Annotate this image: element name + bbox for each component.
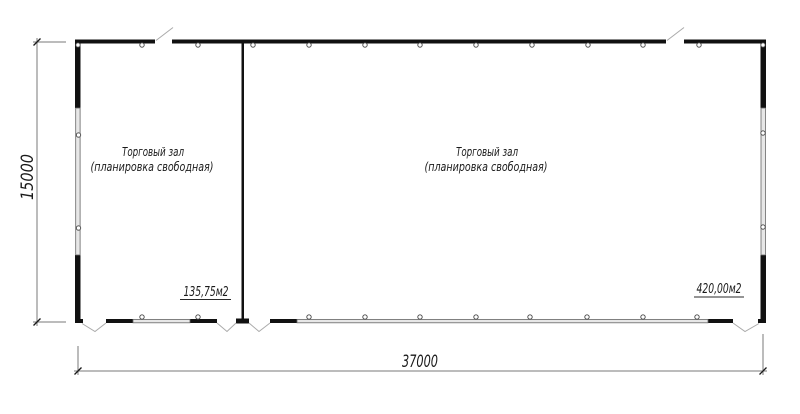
window-marker	[474, 43, 478, 47]
left-room-subtitle: (планировка свободная)	[91, 160, 214, 174]
window-marker	[196, 43, 200, 47]
right-room-subtitle: (планировка свободная)	[425, 160, 548, 174]
window-marker	[140, 43, 144, 47]
window-band-bottom-long	[297, 319, 708, 322]
window-markers	[76, 43, 765, 319]
window-marker	[641, 315, 645, 319]
window-marker	[363, 315, 367, 319]
wall-bottom-partition-foot	[236, 319, 249, 324]
wall-bottom-corner-right	[758, 319, 766, 323]
window-marker	[251, 43, 255, 47]
window-marker	[140, 315, 144, 319]
window-marker	[528, 315, 532, 319]
window-marker	[641, 43, 645, 47]
left-room-area-label: 135,75м2	[184, 284, 229, 300]
window-marker	[585, 315, 589, 319]
wall-left-lower	[75, 255, 81, 323]
window-marker	[761, 43, 765, 47]
right-room-area-label: 420,00м2	[697, 281, 742, 297]
window-band-bottom-small	[133, 319, 190, 322]
window-marker	[76, 43, 80, 47]
window-marker	[697, 43, 701, 47]
window-marker	[695, 315, 699, 319]
window-marker	[761, 131, 765, 135]
entrance-bottom-right	[733, 323, 759, 332]
window-marker	[307, 315, 311, 319]
window-marker	[474, 315, 478, 319]
window-marker	[530, 43, 534, 47]
wall-top-right	[684, 40, 766, 44]
wall-bottom-seg2	[190, 319, 217, 323]
window-band-left	[76, 108, 80, 255]
entrance-bottom-left	[82, 323, 106, 332]
wall-bottom-seg4	[708, 319, 733, 323]
window-marker	[76, 133, 80, 137]
width-dimension-label: 37000	[402, 352, 438, 372]
window-marker	[761, 225, 765, 229]
left-room-title: Торговый зал	[122, 145, 184, 159]
window-marker	[196, 315, 200, 319]
height-dimension-label: 15000	[18, 154, 38, 200]
wall-bottom-seg3	[270, 319, 297, 323]
right-room-title: Торговый зал	[456, 145, 518, 159]
wall-right-lower	[761, 255, 767, 323]
window-marker	[76, 226, 80, 230]
window-marker	[418, 315, 422, 319]
wall-right-upper	[761, 40, 767, 109]
window-marker	[586, 43, 590, 47]
door-swing-top-left	[156, 28, 173, 41]
window-marker	[418, 43, 422, 47]
entrance-bottom-partition-right	[249, 323, 270, 332]
window-band-right	[761, 108, 765, 255]
window-marker	[307, 43, 311, 47]
door-swing-top-right	[667, 28, 684, 41]
entrance-bottom-partition-left	[217, 323, 236, 332]
floor-plan-page: 15000 37000 Торговый зал (планировка сво…	[0, 0, 800, 414]
floor-plan-drawing: 15000 37000 Торговый зал (планировка сво…	[0, 0, 800, 414]
wall-bottom-seg1	[106, 319, 133, 323]
window-marker	[363, 43, 367, 47]
wall-bottom-corner-left	[75, 319, 83, 323]
window-bands	[76, 108, 766, 323]
exterior-walls	[75, 40, 766, 324]
wall-left-upper	[75, 40, 81, 109]
dimension-lines	[33, 38, 767, 375]
partition-wall	[242, 43, 245, 319]
